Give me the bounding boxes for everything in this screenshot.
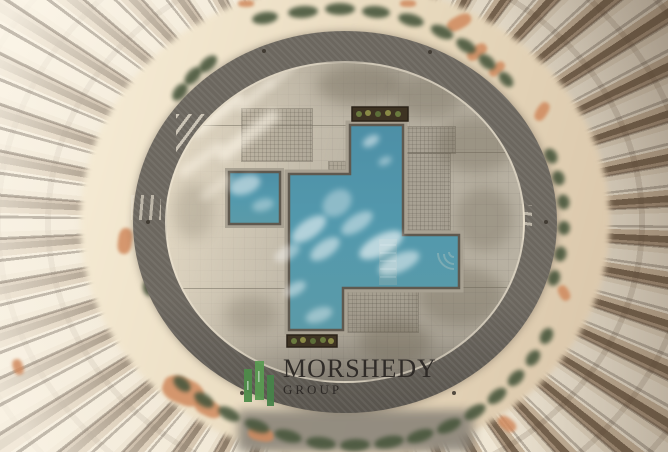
watermark-text: MORSHEDY GROUP: [283, 356, 437, 397]
walkway-lamp: [146, 220, 150, 224]
aerial-photo-scene: MORSHEDY GROUP: [0, 0, 668, 452]
watermark-title: MORSHEDY: [283, 356, 437, 382]
walkway-lamp: [428, 50, 432, 54]
walkway-lamp: [544, 220, 548, 224]
walkway-lamp: [452, 391, 456, 395]
watermark-subtitle: GROUP: [283, 383, 437, 397]
buildings-bars-icon: [242, 359, 278, 407]
walkway-lamp: [262, 49, 266, 53]
morshedy-watermark: MORSHEDY GROUP: [242, 356, 437, 407]
